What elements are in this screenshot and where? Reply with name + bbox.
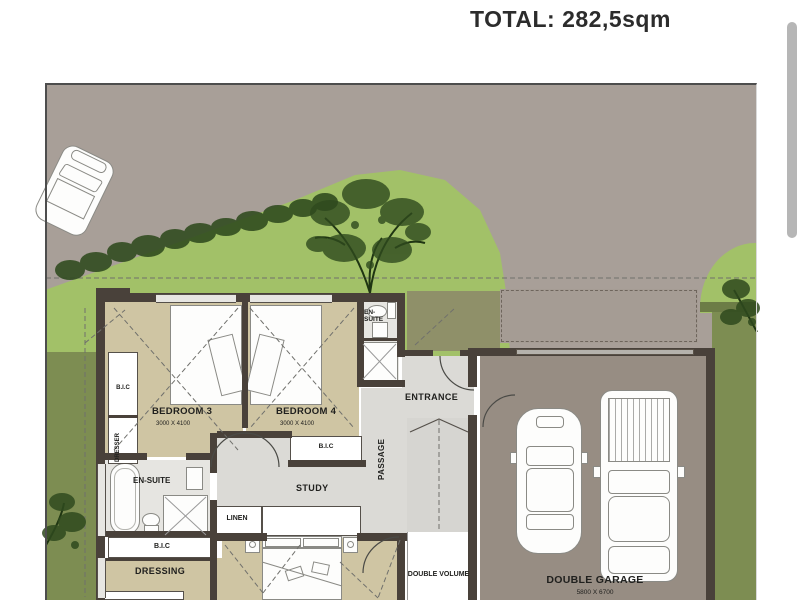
wall-entrance-top-a: [399, 350, 433, 356]
label-double-garage-dims: 5800 X 6700: [528, 590, 662, 597]
label-linen: LINEN: [212, 515, 262, 522]
nightstand-left-lamp: [249, 541, 256, 548]
pickup-bed: [608, 398, 670, 462]
label-bic-left: B.I.C: [110, 385, 136, 391]
basin-left: [186, 467, 203, 490]
wall-ensuite-top-divider: [361, 338, 399, 341]
page-title: TOTAL: 282,5sqm: [470, 6, 671, 33]
grass-strip-left-dark: [46, 352, 102, 600]
sedan-roof: [526, 468, 574, 512]
double-volume-void: [407, 532, 471, 600]
wall-bottom-bedroom-right: [397, 533, 405, 600]
label-bedroom3: BEDROOM 3: [152, 407, 212, 417]
label-ensuite-top: EN-SUITE: [364, 310, 394, 324]
sedan-mirror-left: [510, 452, 517, 464]
wall-study-bottom-a: [210, 533, 267, 541]
car-pickup: [600, 390, 680, 584]
pickup-mirror-right: [677, 466, 685, 478]
wall-entrance-right: [468, 352, 477, 387]
window-top-2: [250, 294, 332, 303]
wall-bedroom4-bottom: [217, 431, 292, 438]
paved-driveway-grid: [500, 289, 698, 343]
garage-door: [516, 349, 694, 355]
staircase: [407, 418, 470, 532]
wall-ensuite-top-bottom: [357, 380, 405, 387]
car-sedan: [516, 408, 584, 556]
basin-top: [372, 322, 388, 338]
label-dresser: DRESSER: [115, 420, 121, 462]
label-ensuite-left: EN-SUITE: [133, 477, 170, 485]
pickup-mirror-left: [593, 466, 601, 478]
label-dressing: DRESSING: [135, 567, 185, 576]
label-double-volume: DOUBLE VOLUME: [407, 571, 470, 578]
pickup-hood: [608, 546, 670, 574]
label-passage: PASSAGE: [378, 418, 386, 480]
label-bic-bedroom4: B.I.C: [290, 444, 362, 451]
wall-bedroom3-bottom-a: [105, 453, 147, 460]
grass-strip-right-dark: [712, 302, 757, 600]
wall-right-upper: [397, 293, 405, 357]
closet-bic-left: [108, 352, 138, 464]
label-bedroom3-dims: 3000 X 4100: [156, 421, 190, 427]
sedan-rear-window: [526, 514, 574, 530]
label-entrance: ENTRANCE: [405, 393, 458, 402]
shower-top: [361, 342, 398, 381]
pillow-1: [265, 538, 301, 547]
wall-bic-bottom: [105, 558, 217, 561]
wall-bedroom-divider: [242, 302, 248, 428]
wall-under-bic4: [288, 460, 366, 467]
wall-study-left-a: [210, 433, 217, 473]
pickup-roof: [608, 496, 670, 542]
hedge-strip-right: [700, 302, 757, 312]
window-top-1: [156, 294, 236, 303]
label-bic-bottom: B.I.C: [108, 543, 216, 550]
wood-deck: [407, 291, 500, 351]
closet-divider: [108, 415, 138, 418]
wall-left: [96, 293, 105, 600]
window-left-2: [97, 558, 106, 598]
closet-bic-cut: [104, 591, 184, 600]
study-counter: [262, 506, 361, 536]
wall-ensuite-left-bottom: [105, 531, 217, 537]
sedan-grill: [536, 416, 564, 428]
window-left-1: [97, 464, 106, 536]
wall-garage-right: [706, 356, 715, 600]
sedan-windshield: [526, 446, 574, 466]
pickup-windshield: [608, 470, 670, 494]
label-study: STUDY: [296, 484, 329, 493]
label-bedroom4-dims: 3000 X 4100: [280, 421, 314, 427]
sedan-mirror-right: [581, 452, 588, 464]
label-bedroom4: BEDROOM 4: [276, 407, 336, 417]
floor-entrance: [402, 356, 474, 420]
label-double-garage: DOUBLE GARAGE: [528, 575, 662, 586]
nightstand-right-lamp: [347, 541, 354, 548]
pillow-2: [303, 538, 339, 547]
scrollbar-thumb[interactable]: [787, 22, 797, 238]
